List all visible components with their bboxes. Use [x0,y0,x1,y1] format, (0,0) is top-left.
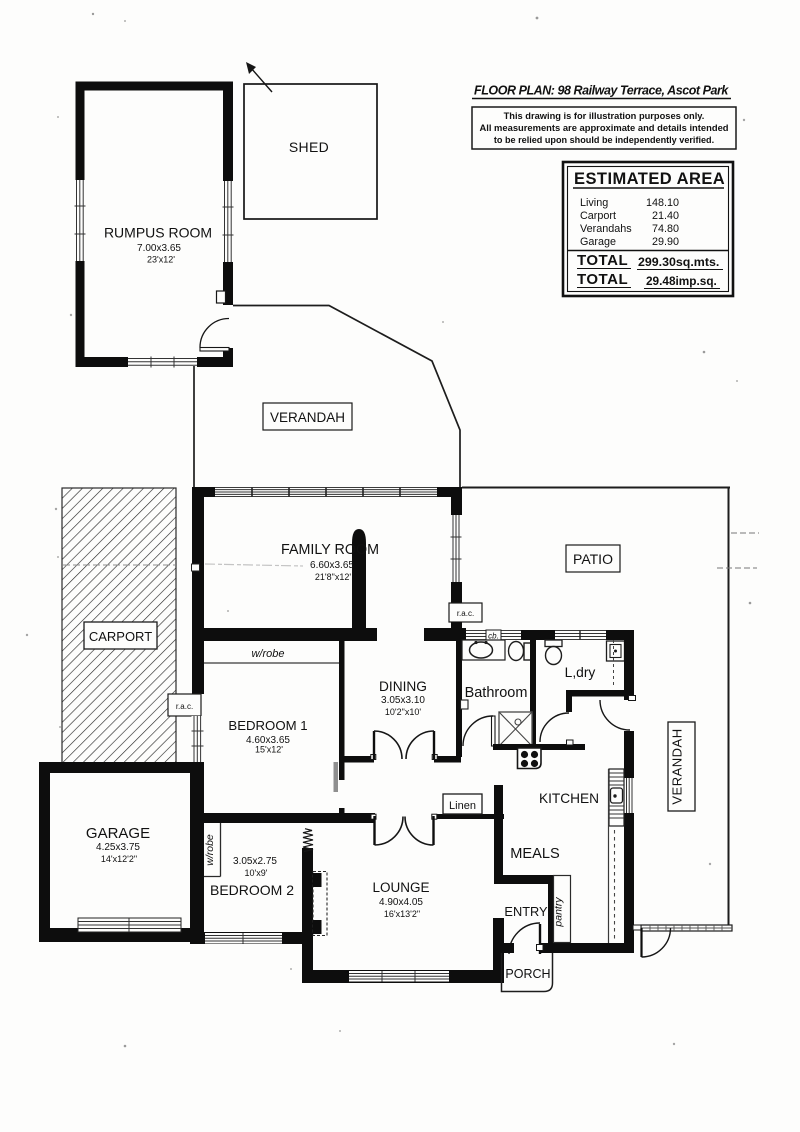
svg-text:Living: Living [580,197,608,209]
svg-text:10'2"x10': 10'2"x10' [385,707,421,717]
svg-text:LOUNGE: LOUNGE [372,880,429,895]
svg-text:Bathroom: Bathroom [465,685,528,701]
svg-text:15'x12': 15'x12' [255,745,283,755]
svg-text:FAMILY ROOM: FAMILY ROOM [281,542,379,558]
svg-text:ESTIMATED AREA: ESTIMATED AREA [574,170,725,188]
svg-text:PATIO: PATIO [573,551,613,567]
svg-text:ENTRY: ENTRY [504,904,548,919]
svg-text:FLOOR PLAN: 98 Railway Terrace: FLOOR PLAN: 98 Railway Terrace, Ascot Pa… [474,84,729,98]
svg-text:Verandahs: Verandahs [580,223,632,235]
svg-text:29.48imp.sq.: 29.48imp.sq. [646,274,717,288]
svg-text:7.00x3.65: 7.00x3.65 [137,243,181,254]
svg-text:RUMPUS ROOM: RUMPUS ROOM [104,225,212,241]
svg-text:pantry: pantry [553,897,565,928]
svg-text:6.60x3.65: 6.60x3.65 [310,560,354,571]
svg-text:148.10: 148.10 [646,197,679,209]
svg-text:MEALS: MEALS [510,846,560,862]
svg-text:VERANDAH: VERANDAH [270,410,345,425]
svg-text:10'x9': 10'x9' [245,868,268,878]
svg-text:r.a.c.: r.a.c. [457,609,474,618]
svg-text:4.90x4.05: 4.90x4.05 [379,897,423,908]
svg-text:TOTAL: TOTAL [577,271,628,288]
svg-text:PORCH: PORCH [505,967,550,981]
svg-text:All measurements are approxima: All measurements are approximate and det… [479,122,728,133]
svg-text:299.30sq.mts.: 299.30sq.mts. [638,255,719,269]
svg-text:16'x13'2": 16'x13'2" [384,909,420,919]
svg-text:BEDROOM 1: BEDROOM 1 [228,718,307,733]
svg-text:L,dry: L,dry [565,665,596,680]
svg-text:DINING: DINING [379,679,427,694]
svg-text:14'x12'2": 14'x12'2" [101,854,137,864]
svg-text:SHED: SHED [289,139,329,155]
svg-text:BEDROOM 2: BEDROOM 2 [210,882,294,898]
svg-text:Linen: Linen [449,800,476,812]
svg-text:74.80: 74.80 [652,223,679,235]
svg-text:CARPORT: CARPORT [89,629,152,644]
svg-text:This drawing is for illustrati: This drawing is for illustration purpose… [504,111,705,121]
svg-text:3.05x2.75: 3.05x2.75 [233,856,277,867]
svg-text:21'8"x12': 21'8"x12' [315,572,351,582]
svg-text:Carport: Carport [580,210,616,222]
svg-text:TOTAL: TOTAL [577,252,628,269]
svg-text:to be relied upon should be in: to be relied upon should be independentl… [494,135,714,145]
svg-text:w/robe: w/robe [251,648,284,660]
svg-text:VERANDAH: VERANDAH [670,728,685,804]
svg-text:4.25x3.75: 4.25x3.75 [96,842,140,853]
svg-text:GARAGE: GARAGE [86,825,150,842]
svg-text:23'x12': 23'x12' [147,255,175,265]
svg-text:KITCHEN: KITCHEN [539,791,599,806]
svg-text:cb.: cb. [488,632,499,641]
svg-text:Garage: Garage [580,236,616,248]
svg-text:w/robe: w/robe [204,834,216,866]
svg-text:21.40: 21.40 [652,210,679,222]
svg-text:29.90: 29.90 [652,236,679,248]
svg-text:3.05x3.10: 3.05x3.10 [381,695,425,706]
svg-text:r.a.c.: r.a.c. [176,702,193,711]
